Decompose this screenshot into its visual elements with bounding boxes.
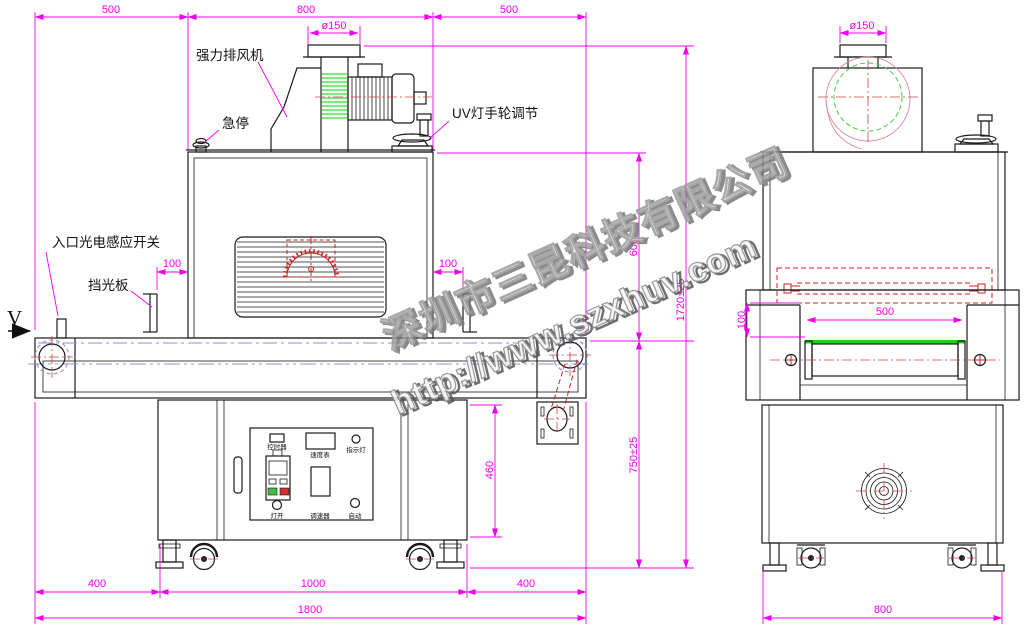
dim-belt-width: 500 xyxy=(876,306,894,318)
callout-light-baffle: 挡光板 xyxy=(88,278,129,293)
dim-total-length: 1800 xyxy=(298,604,322,616)
panel-label-lamp-on: 灯开 xyxy=(271,511,285,520)
speed-knob[interactable] xyxy=(311,467,330,496)
speed-meter-display xyxy=(306,433,335,449)
cad-drawing-page: 500 800 500 ø150 xyxy=(0,0,1024,632)
timer-display[interactable] xyxy=(270,434,284,442)
handwheel-bolt xyxy=(420,120,428,136)
panel-label-speed-ctrl: 调速器 xyxy=(310,511,330,520)
callout-uv-handwheel: UV灯手轮调节 xyxy=(452,106,538,121)
belt-green-edge xyxy=(805,340,965,344)
dim-top-right: 500 xyxy=(500,4,518,16)
side-bottom-dimension: 800 xyxy=(763,572,1002,624)
lamp-on-button[interactable] xyxy=(273,501,282,510)
drive-motor-bracket xyxy=(537,360,578,444)
duct-flange xyxy=(308,45,360,57)
uv-handwheel-assembly xyxy=(392,114,432,152)
start-button[interactable] xyxy=(351,499,360,508)
uv-machine-drawing: 500 800 500 ø150 xyxy=(0,0,1024,632)
door-handle[interactable] xyxy=(234,457,242,493)
motor-end-bell xyxy=(392,74,414,123)
motor-shaft xyxy=(414,92,426,104)
cooling-fan-grille xyxy=(856,463,912,519)
roller-left xyxy=(31,336,73,378)
callout-exhaust-fan: 强力排风机 xyxy=(196,48,264,63)
dim-cabinet-width: 1000 xyxy=(301,578,325,590)
dim-baffle-left: 100 xyxy=(163,258,181,270)
side-handwheel xyxy=(955,115,998,152)
dim-cabinet-height: 460 xyxy=(484,461,496,479)
dim-foot-left: 400 xyxy=(88,578,106,590)
watermarks: 深圳市三昆科技有限公司 深圳市三昆科技有限公司 http://www.szxhu… xyxy=(377,141,799,424)
entry-sensor-block xyxy=(57,319,66,338)
side-view: ø150 xyxy=(736,20,1019,624)
dim-foot-right: 400 xyxy=(517,578,535,590)
motor-terminal-box xyxy=(358,64,382,77)
fan-volute-housing xyxy=(271,68,321,152)
callout-entry-sensor: 入口光电感应开关 xyxy=(52,234,160,250)
dim-top-mid: 800 xyxy=(297,4,315,16)
panel-label-indicator: 指示灯 xyxy=(346,445,366,454)
vfd-inverter[interactable] xyxy=(266,450,290,500)
dim-flange-side: ø150 xyxy=(849,20,874,32)
callout-emergency-stop: 急停 xyxy=(222,115,249,131)
side-exhaust-fan xyxy=(813,45,998,152)
dim-belt-height: 750±25 xyxy=(628,437,640,474)
dim-top-left: 500 xyxy=(102,4,120,16)
uv-lamp-side xyxy=(777,268,992,303)
side-roller xyxy=(770,341,1000,385)
side-cabinet xyxy=(762,405,1004,571)
panel-label-start: 启动 xyxy=(349,511,363,520)
front-feet xyxy=(156,540,464,570)
dim-side-width: 800 xyxy=(874,604,892,616)
panel-label-speed-meter: 速度表 xyxy=(310,450,330,459)
dim-baffle-right: 100 xyxy=(439,258,457,270)
cabinet-front: 控时器 速度表 指示灯 灯开 调速器 启 xyxy=(158,400,467,540)
indicator-light xyxy=(352,435,360,443)
side-feet xyxy=(763,543,1004,571)
belt-direction-letter: V xyxy=(7,306,22,330)
dim-flange-front: ø150 xyxy=(321,20,346,32)
side-top-dimensions: ø150 xyxy=(840,20,886,43)
dim-lamp-gap: 100 xyxy=(736,311,748,329)
fan-inlet-green-stripes xyxy=(322,74,347,118)
control-panel: 控时器 速度表 指示灯 灯开 调速器 启 xyxy=(250,428,373,520)
